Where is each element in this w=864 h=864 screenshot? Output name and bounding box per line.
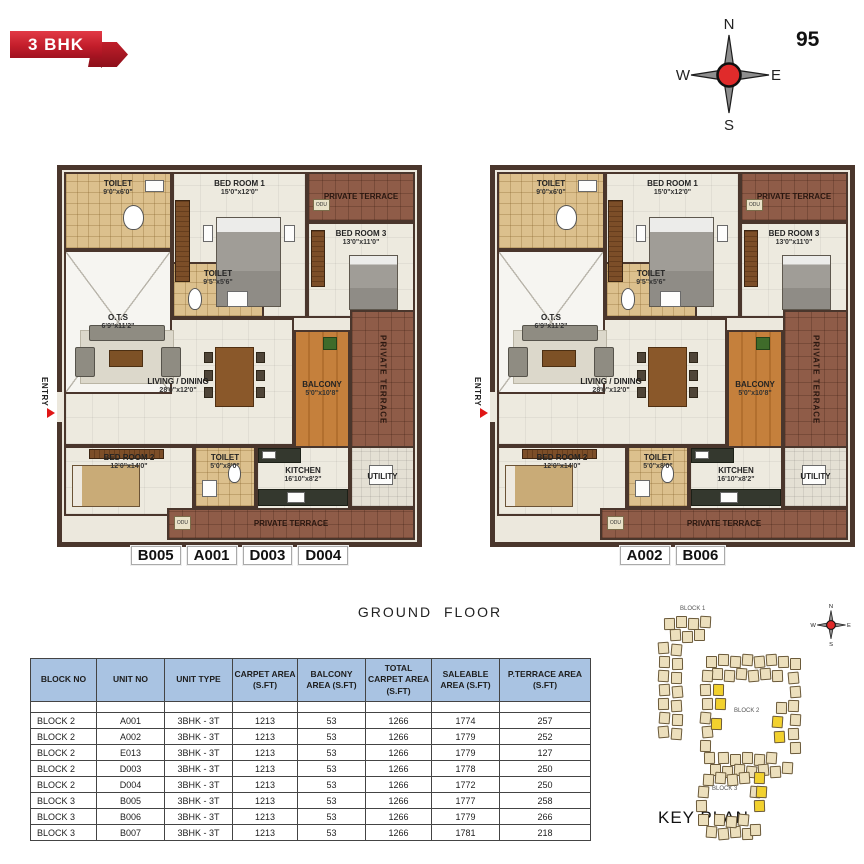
furniture-ward [608, 200, 622, 282]
compass-s-label: S [724, 117, 734, 134]
furniture-chair [256, 370, 265, 381]
table-cell: 1213 [233, 713, 298, 729]
table-cell: 1779 [432, 809, 500, 825]
table-cell: 3BHK - 3T [165, 793, 233, 809]
keyplan-unit [788, 700, 799, 712]
table-cell: 1266 [366, 713, 432, 729]
table-cell: 1266 [366, 793, 432, 809]
keyplan-unit [778, 656, 789, 668]
furniture-ward [311, 230, 325, 287]
room-label: LIVING / DINING28'0"x12'0" [580, 377, 641, 395]
room-utility: UTILITY [783, 446, 848, 508]
furniture-sofa [508, 347, 528, 377]
unit-tag: D004 [298, 546, 348, 565]
table-row: BLOCK 2D0043BHK - 3T12135312661772250 [31, 777, 591, 793]
room-toilet1: TOILET9'0"x6'0" [497, 172, 605, 250]
keyplan-unit [750, 824, 761, 836]
room-bedroom2: BED ROOM 212'0"x14'0" [497, 446, 627, 516]
table-cell: 218 [500, 825, 591, 841]
table-cell: BLOCK 2 [31, 729, 97, 745]
keyplan-unit-highlighted [711, 718, 722, 730]
room-terrace_bottom: ODUPRIVATE TERRACE [167, 508, 415, 540]
furniture-wc [123, 205, 144, 230]
unit-tag: B006 [676, 546, 726, 565]
keyplan-unit [699, 712, 711, 725]
table-cell: B007 [97, 825, 165, 841]
table-cell: 3BHK - 3T [165, 825, 233, 841]
furniture-bed [216, 217, 282, 308]
table-cell: 127 [500, 745, 591, 761]
table-header-cell: SALEABLE AREA (S.FT) [432, 659, 500, 702]
furniture-bed [649, 217, 715, 308]
keyplan-unit [703, 774, 715, 787]
table-row: BLOCK 2D0033BHK - 3T12135312661778250 [31, 761, 591, 777]
keyplan-unit [676, 616, 687, 628]
table-cell: D004 [97, 777, 165, 793]
room-label: BED ROOM 212'0"x14'0" [537, 453, 588, 471]
keyplan-unit [726, 816, 738, 829]
entry-door-gap [490, 392, 495, 422]
furniture-ward [175, 200, 189, 282]
furniture-white [227, 291, 248, 307]
table-cell: 266 [500, 809, 591, 825]
table-cell: BLOCK 3 [31, 809, 97, 825]
floor-plan-left: LIVING / DINING28'0"x12'0"BED ROOM 115'0… [57, 165, 422, 575]
keyplan-unit [658, 698, 669, 710]
table-row: BLOCK 3B0063BHK - 3T12135312661779266 [31, 809, 591, 825]
table-cell: 1266 [366, 825, 432, 841]
keyplan-unit [700, 740, 711, 752]
compass-rose-icon: N E S W [666, 12, 792, 138]
keyplan-unit [658, 642, 670, 655]
keyplan-unit [671, 728, 683, 741]
room-label: BALCONY5'0"x10'8" [302, 380, 342, 398]
entry-label: ENTRY [40, 377, 49, 406]
keyplan-unit [671, 672, 682, 684]
furniture-chair [637, 352, 646, 363]
furniture-dt [215, 347, 253, 407]
furniture-plant [756, 337, 770, 351]
floor-plan-right: LIVING / DINING28'0"x12'0"BED ROOM 115'0… [490, 165, 855, 575]
furniture-odu-unit: ODU [607, 516, 624, 530]
furniture-wc [188, 288, 202, 310]
room-toilet3: TOILET5'0"x8'0" [194, 446, 256, 508]
entry-label: ENTRY [473, 377, 482, 406]
keyplan-unit [670, 644, 682, 657]
furniture-bed2 [505, 465, 573, 507]
room-terrace_right: PRIVATE TERRACE [783, 310, 848, 450]
room-balcony: BALCONY5'0"x10'8" [294, 330, 350, 448]
room-label: BALCONY5'0"x10'8" [735, 380, 775, 398]
entry-arrow-icon [47, 408, 55, 418]
keyplan-unit [736, 668, 748, 681]
keyplan-unit-highlighted [772, 716, 784, 729]
svg-text:E: E [847, 623, 851, 629]
room-kitchen: KITCHEN16'10"x8'2" [689, 446, 783, 516]
table-cell: 1213 [233, 761, 298, 777]
table-cell: 250 [500, 777, 591, 793]
unit-tag: A002 [620, 546, 670, 565]
table-cell: 3BHK - 3T [165, 745, 233, 761]
table-cell: BLOCK 2 [31, 713, 97, 729]
keyplan-unit [706, 826, 718, 839]
keyplan-unit [726, 774, 738, 787]
keyplan-unit [715, 772, 727, 785]
furniture-white [717, 225, 727, 242]
keyplan-unit [724, 670, 736, 683]
room-label: BED ROOM 313'0"x11'0" [336, 229, 387, 247]
keyplan-unit [671, 686, 683, 699]
table-cell: 53 [298, 809, 366, 825]
keyplan-unit [700, 616, 712, 629]
furniture-chair [256, 352, 265, 363]
table-cell: 1266 [366, 761, 432, 777]
table-header-cell: BALCONY AREA (S.FT) [298, 659, 366, 702]
table-cell: BLOCK 2 [31, 761, 97, 777]
furniture-white [660, 291, 681, 307]
room-label: PRIVATE TERRACE [811, 335, 821, 424]
furniture-plant [323, 337, 337, 351]
keyplan-unit [670, 629, 682, 642]
furniture-white [284, 225, 294, 242]
table-cell: BLOCK 2 [31, 745, 97, 761]
table-cell: 1266 [366, 777, 432, 793]
table-cell: 53 [298, 713, 366, 729]
table-cell: 53 [298, 793, 366, 809]
keyplan-unit-highlighted [754, 800, 765, 812]
table-header-cell: P.TERRACE AREA (S.FT) [500, 659, 591, 702]
area-table-header: BLOCK NOUNIT NOUNIT TYPECARPET AREA (S.F… [31, 659, 591, 702]
furniture-white [262, 451, 276, 460]
keyplan-unit [659, 684, 671, 697]
furniture-odu-unit: ODU [174, 516, 191, 530]
table-cell: A002 [97, 729, 165, 745]
table-cell: 1266 [366, 809, 432, 825]
table-row: BLOCK 3B0073BHK - 3T12135312661781218 [31, 825, 591, 841]
keyplan-unit [702, 670, 714, 683]
room-label: PRIVATE TERRACE [378, 335, 388, 424]
room-label: KITCHEN16'10"x8'2" [284, 466, 321, 484]
page: { "ribbon": { "label": "3 BHK" }, "page_… [0, 0, 864, 864]
room-label: LIVING / DINING28'0"x12'0" [147, 377, 208, 395]
room-living: LIVING / DINING28'0"x12'0" [64, 318, 294, 446]
unit-tag: B005 [131, 546, 181, 565]
table-cell: 1213 [233, 793, 298, 809]
keyplan-unit [694, 629, 705, 641]
svg-text:N: N [829, 604, 833, 610]
keyplan-unit-highlighted [715, 698, 726, 710]
table-cell: 258 [500, 793, 591, 809]
room-label: PRIVATE TERRACE [324, 192, 398, 202]
table-cell: 1779 [432, 745, 500, 761]
furniture-bed2 [72, 465, 140, 507]
furniture-ct [542, 350, 576, 367]
furniture-white [287, 492, 305, 504]
table-cell: 3BHK - 3T [165, 809, 233, 825]
room-label: O.T.S6'9"x11'2" [102, 313, 135, 331]
room-label: PRIVATE TERRACE [757, 192, 831, 202]
svg-text:S: S [829, 642, 833, 648]
keyplan-unit [717, 828, 729, 841]
table-cell: 250 [500, 761, 591, 777]
room-label: O.T.S6'9"x11'2" [535, 313, 568, 331]
keyplan-unit [698, 814, 709, 826]
table-cell: B005 [97, 793, 165, 809]
room-label: BED ROOM 212'0"x14'0" [104, 453, 155, 471]
page-number: 95 [796, 28, 846, 52]
table-row: BLOCK 2A0023BHK - 3T12135312661779252 [31, 729, 591, 745]
table-cell: 1777 [432, 793, 500, 809]
unit-type-ribbon: 3 BHK [10, 31, 102, 58]
table-cell: 1213 [233, 729, 298, 745]
table-cell: 1213 [233, 777, 298, 793]
furniture-chair [689, 387, 698, 398]
entry-door-gap [57, 392, 62, 422]
furniture-dt [648, 347, 686, 407]
keyplan-unit [739, 772, 751, 785]
room-terrace_bottom: ODUPRIVATE TERRACE [600, 508, 848, 540]
keyplan-unit [760, 668, 772, 681]
room-terrace_top: ODUPRIVATE TERRACE [307, 172, 415, 222]
furniture-white [578, 180, 597, 192]
keyplan-unit [718, 654, 729, 666]
table-cell: 53 [298, 777, 366, 793]
compass-n-label: N [724, 16, 735, 33]
keyplan-unit [659, 656, 670, 668]
table-cell: 53 [298, 745, 366, 761]
keyplan-unit [657, 726, 669, 739]
unit-tags-right: A002B006 [490, 546, 855, 565]
table-cell: BLOCK 3 [31, 825, 97, 841]
table-row: BLOCK 2E0133BHK - 3T12135312661779127 [31, 745, 591, 761]
keyplan-unit [790, 686, 802, 699]
table-cell: 1266 [366, 745, 432, 761]
table-header-cell: TOTAL CARPET AREA (S.FT) [366, 659, 432, 702]
keyplan-unit [730, 656, 742, 669]
furniture-ward [744, 230, 758, 287]
table-cell: D003 [97, 761, 165, 777]
table-cell: 3BHK - 3T [165, 713, 233, 729]
keyplan-unit [671, 700, 683, 713]
room-utility: UTILITY [350, 446, 415, 508]
table-cell: 3BHK - 3T [165, 729, 233, 745]
room-bedroom3: BED ROOM 313'0"x11'0" [307, 222, 415, 318]
table-cell: BLOCK 2 [31, 777, 97, 793]
furniture-chair [204, 352, 213, 363]
table-cell: 1778 [432, 761, 500, 777]
room-label: KITCHEN16'10"x8'2" [717, 466, 754, 484]
table-cell: 3BHK - 3T [165, 761, 233, 777]
entry-arrow-icon [480, 408, 488, 418]
table-header-cell: CARPET AREA (S.FT) [233, 659, 298, 702]
floor-plan-canvas: LIVING / DINING28'0"x12'0"BED ROOM 115'0… [490, 165, 855, 547]
keyplan-unit [704, 752, 715, 764]
keyplan-block1-label: BLOCK 1 [680, 606, 705, 612]
keyplan-unit-highlighted [754, 772, 765, 784]
table-cell: B006 [97, 809, 165, 825]
unit-tag: A001 [187, 546, 237, 565]
furniture-white [720, 492, 738, 504]
furniture-sofa [594, 347, 614, 377]
keyplan-unit [790, 714, 802, 727]
keyplan-compass-icon: N E S W [808, 602, 854, 648]
svg-text:W: W [810, 623, 816, 629]
table-row: BLOCK 3B0053BHK - 3T12135312661777258 [31, 793, 591, 809]
table-cell: 1781 [432, 825, 500, 841]
table-cell: 1213 [233, 809, 298, 825]
table-cell: 1779 [432, 729, 500, 745]
keyplan-unit [787, 672, 799, 685]
table-cell: A001 [97, 713, 165, 729]
room-label: BED ROOM 115'0"x12'0" [647, 179, 698, 197]
room-label: TOILET9'5"x5'6" [636, 269, 665, 287]
room-terrace_top: ODUPRIVATE TERRACE [740, 172, 848, 222]
keyplan-unit [718, 752, 729, 764]
furniture-white [695, 451, 709, 460]
keyplan-unit [766, 654, 778, 667]
keyplan-unit-highlighted [713, 684, 724, 696]
keyplan-unit [658, 670, 670, 683]
table-cell: 3BHK - 3T [165, 777, 233, 793]
keyplan-unit [714, 814, 725, 826]
floor-title: GROUND FLOOR [280, 604, 580, 620]
room-balcony: BALCONY5'0"x10'8" [727, 330, 783, 448]
table-cell: 53 [298, 761, 366, 777]
table-cell: 53 [298, 729, 366, 745]
room-toilet1: TOILET9'0"x6'0" [64, 172, 172, 250]
furniture-chair [689, 352, 698, 363]
unit-tag: D003 [243, 546, 293, 565]
keyplan-unit [747, 670, 759, 683]
keyplan-unit [776, 702, 787, 714]
compass-e-label: E [771, 67, 781, 84]
table-cell: 53 [298, 825, 366, 841]
table-cell: 1266 [366, 729, 432, 745]
keyplan-unit [742, 752, 753, 764]
keyplan-unit [790, 742, 801, 754]
table-cell: E013 [97, 745, 165, 761]
room-bedroom2: BED ROOM 212'0"x14'0" [64, 446, 194, 516]
unit-tags-left: B005A001D003D004 [57, 546, 422, 565]
room-label: UTILITY [367, 472, 397, 482]
keyplan-unit [698, 786, 710, 799]
furniture-chair [689, 370, 698, 381]
room-label: TOILET5'0"x8'0" [210, 453, 239, 471]
keyplan-unit [696, 800, 707, 812]
keyplan-unit [700, 684, 711, 696]
room-bedroom3: BED ROOM 313'0"x11'0" [740, 222, 848, 318]
keyplan-unit [782, 762, 794, 775]
furniture-chair [256, 387, 265, 398]
key-plan: N E S W BLOCK 1 BLOCK 2 BLOCK 3 KEY PLAN [650, 598, 860, 853]
table-cell: 1213 [233, 825, 298, 841]
table-spacer-row [31, 702, 591, 713]
furniture-wc [556, 205, 577, 230]
room-living: LIVING / DINING28'0"x12'0" [497, 318, 727, 446]
table-cell: 1774 [432, 713, 500, 729]
table-cell: 252 [500, 729, 591, 745]
furniture-sofa [161, 347, 181, 377]
keyplan-unit [772, 670, 783, 682]
furniture-white [635, 480, 650, 497]
room-label: UTILITY [800, 472, 830, 482]
table-header-cell: UNIT TYPE [165, 659, 233, 702]
keyplan-unit [712, 668, 723, 680]
table-cell: 1772 [432, 777, 500, 793]
keyplan-block2-label: BLOCK 2 [734, 708, 759, 714]
furniture-ct [109, 350, 143, 367]
keyplan-unit [742, 654, 754, 667]
keyplan-unit [672, 658, 683, 670]
keyplan-unit [790, 658, 801, 670]
area-table: BLOCK NOUNIT NOUNIT TYPECARPET AREA (S.F… [30, 658, 591, 841]
keyplan-unit [672, 714, 683, 726]
table-header-cell: UNIT NO [97, 659, 165, 702]
keyplan-block3-label: BLOCK 3 [712, 786, 737, 792]
furniture-bed [782, 255, 832, 310]
keyplan-unit [706, 656, 717, 668]
table-header-cell: BLOCK NO [31, 659, 97, 702]
keyplan-unit [788, 728, 799, 740]
floor-plan-canvas: LIVING / DINING28'0"x12'0"BED ROOM 115'0… [57, 165, 422, 547]
room-label: TOILET5'0"x8'0" [643, 453, 672, 471]
keyplan-unit [753, 656, 765, 669]
furniture-white [145, 180, 164, 192]
room-kitchen: KITCHEN16'10"x8'2" [256, 446, 350, 516]
keyplan-unit-highlighted [756, 786, 768, 799]
furniture-sofa [75, 347, 95, 377]
room-label: BED ROOM 313'0"x11'0" [769, 229, 820, 247]
keyplan-unit-highlighted [774, 731, 786, 744]
table-cell: BLOCK 3 [31, 793, 97, 809]
keyplan-unit [702, 698, 713, 710]
room-label: BED ROOM 115'0"x12'0" [214, 179, 265, 197]
room-label: TOILET9'0"x6'0" [103, 179, 132, 197]
furniture-white [636, 225, 646, 242]
room-label: PRIVATE TERRACE [254, 519, 328, 529]
furniture-wc [621, 288, 635, 310]
compass-w-label: W [676, 67, 691, 84]
room-terrace_right: PRIVATE TERRACE [350, 310, 415, 450]
keyplan-unit [766, 752, 778, 765]
furniture-bed [349, 255, 399, 310]
room-label: TOILET9'0"x6'0" [536, 179, 565, 197]
table-cell: 257 [500, 713, 591, 729]
furniture-white [202, 480, 217, 497]
table-row: BLOCK 2A0013BHK - 3T12135312661774257 [31, 713, 591, 729]
keyplan-unit [659, 712, 671, 725]
table-cell: 1213 [233, 745, 298, 761]
keyplan-unit [770, 766, 782, 779]
room-toilet3: TOILET5'0"x8'0" [627, 446, 689, 508]
keyplan-unit [682, 631, 693, 643]
furniture-white [203, 225, 213, 242]
room-label: TOILET9'5"x5'6" [203, 269, 232, 287]
room-label: PRIVATE TERRACE [687, 519, 761, 529]
keyplan-unit [737, 814, 749, 827]
